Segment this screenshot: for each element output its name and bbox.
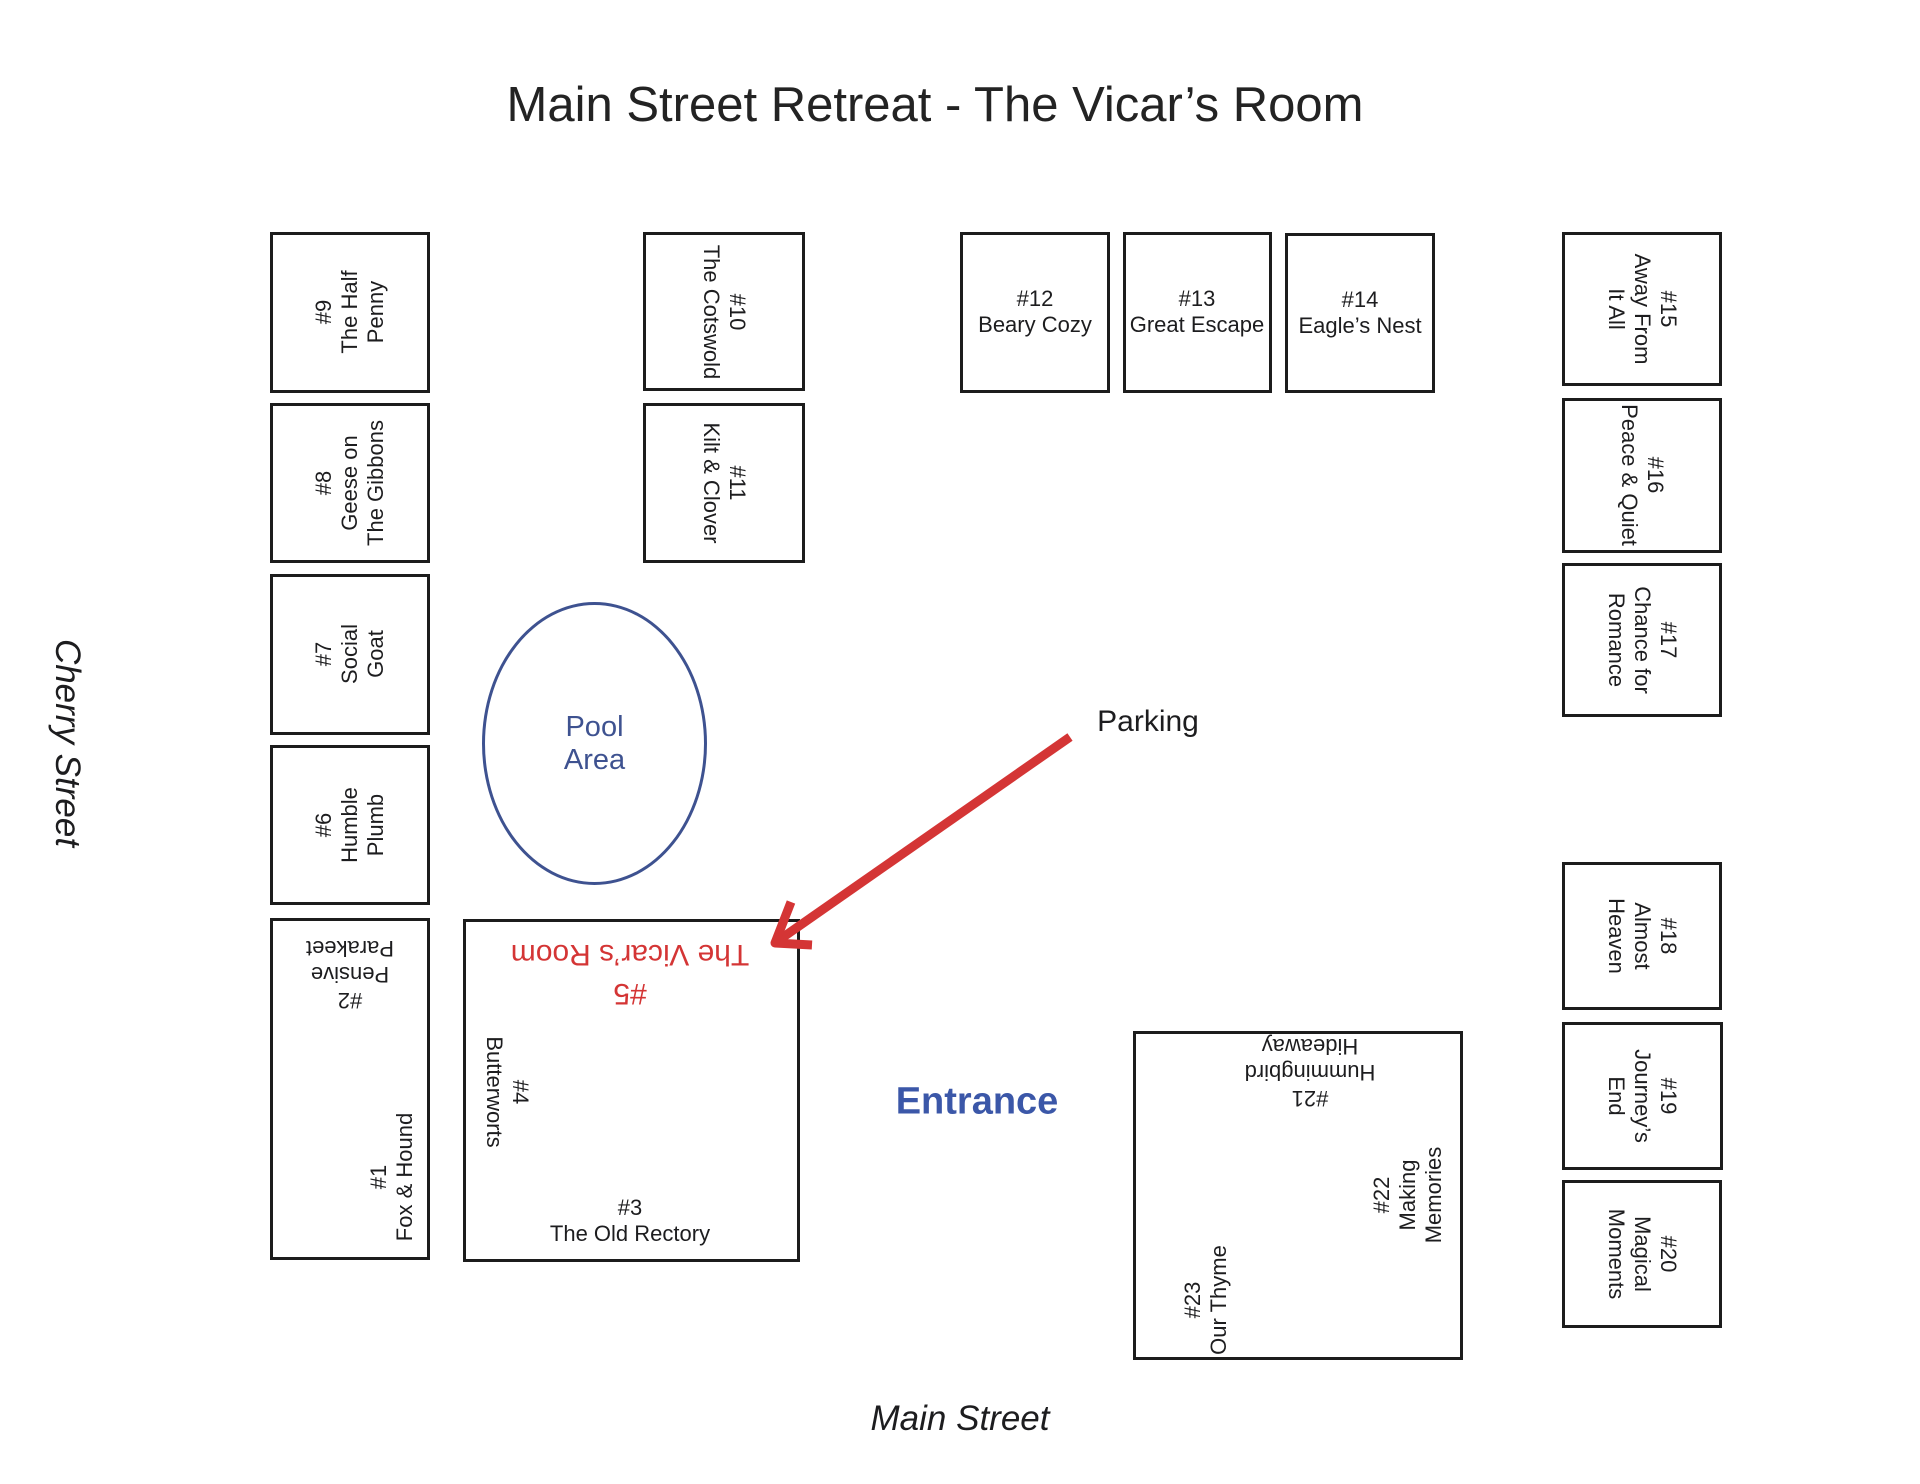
room-label-21: #21 Hummingbird Hideaway: [1245, 1033, 1376, 1111]
room-label-23: #23 Our Thyme: [1180, 1245, 1232, 1355]
site-map: Main Street Retreat - The Vicar’s Room C…: [0, 0, 1920, 1484]
main-street-label: Main Street: [871, 1399, 1050, 1439]
room-label-16: #16 Peace & Quiet: [1616, 404, 1668, 546]
room-label-14: #14 Eagle’s Nest: [1298, 287, 1421, 339]
room-label-15: #15 Away From It All: [1603, 254, 1681, 365]
room-label-6: #6 Humble Plumb: [311, 787, 389, 863]
room-label-2: #2 Pensive Parakeet: [306, 935, 394, 1013]
parking-label: Parking: [1097, 705, 1199, 739]
room-label-9: #9 The Half Penny: [311, 270, 389, 353]
pool-area-label: Pool Area: [564, 711, 625, 777]
room-label-20: #20 Magical Moments: [1603, 1209, 1681, 1299]
room-label-11: #11 Kilt & Clover: [698, 422, 750, 543]
page-title: Main Street Retreat - The Vicar’s Room: [507, 77, 1364, 133]
room-label-10: #10 The Cotswold: [698, 245, 750, 380]
room-label-18: #18 Almost Heaven: [1603, 898, 1681, 974]
entrance-label: Entrance: [896, 1081, 1059, 1124]
room-label-3: #3 The Old Rectory: [550, 1195, 710, 1247]
room-label-1: #1 Fox & Hound: [366, 1113, 418, 1241]
pool-area-ellipse: Pool Area: [482, 602, 707, 885]
room-label-7: #7 Social Goat: [311, 624, 389, 684]
room-label-22: #22 Making Memories: [1369, 1147, 1447, 1244]
room-label-5-vicars-room: #5 The Vicar’s Room: [511, 935, 749, 1013]
room-label-8: #8 Geese on The Gibbons: [311, 420, 389, 546]
room-label-12: #12 Beary Cozy: [978, 286, 1092, 338]
room-label-17: #17 Chance for Romance: [1603, 586, 1681, 694]
room-label-13: #13 Great Escape: [1130, 286, 1265, 338]
room-label-4: #4 Butterworts: [481, 1036, 533, 1147]
cherry-street-label: Cherry Street: [47, 639, 87, 847]
room-label-19: #19 Journey’s End: [1603, 1049, 1681, 1143]
